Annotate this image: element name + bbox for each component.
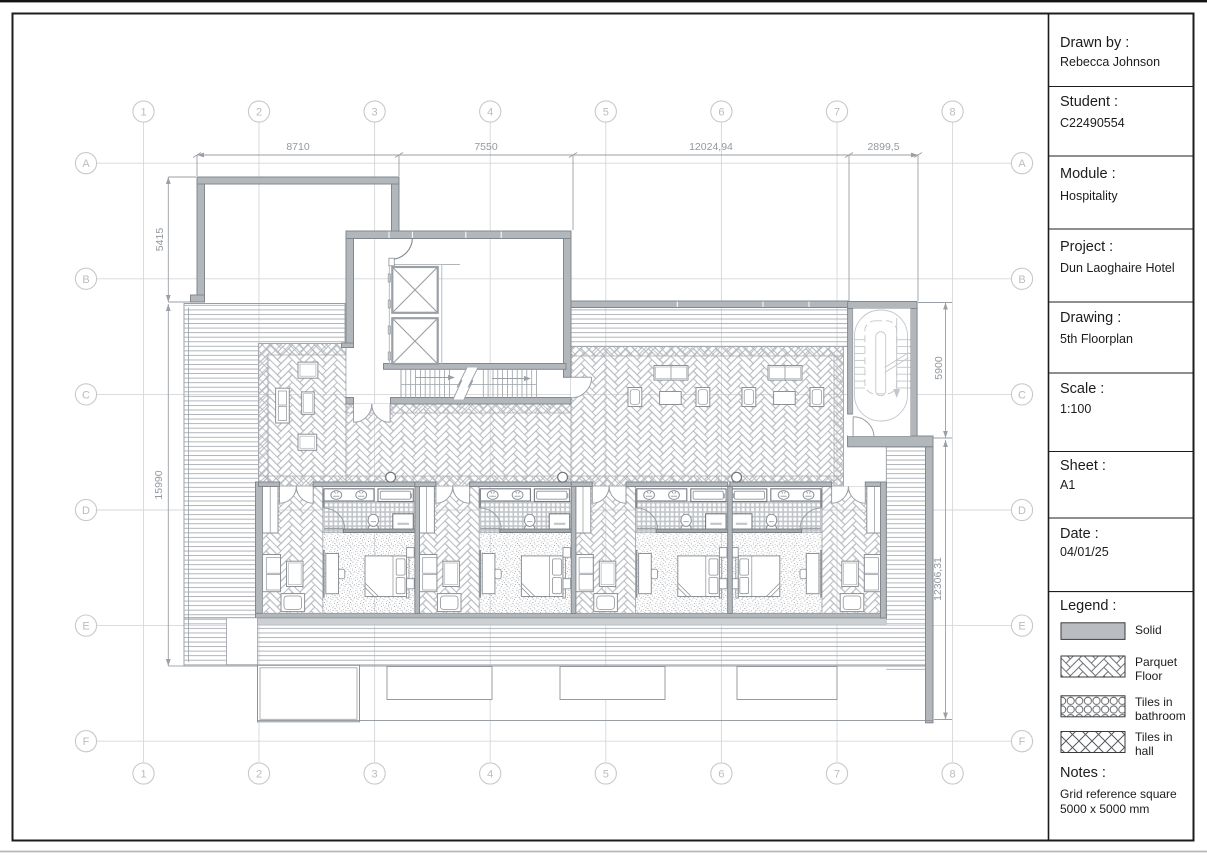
svg-text:3: 3: [372, 107, 378, 119]
svg-text:B: B: [1018, 274, 1025, 286]
svg-text:A1: A1: [1060, 478, 1075, 492]
svg-text:2899,5: 2899,5: [867, 141, 899, 153]
svg-text:3: 3: [372, 769, 378, 781]
svg-text:F: F: [83, 736, 90, 748]
svg-text:1: 1: [140, 769, 146, 781]
svg-text:15990: 15990: [153, 470, 165, 499]
svg-text:5000 x 5000 mm: 5000 x 5000 mm: [1060, 802, 1149, 816]
svg-text:5th Floorplan: 5th Floorplan: [1060, 332, 1133, 346]
svg-text:Project :: Project :: [1060, 239, 1113, 255]
svg-text:Drawing :: Drawing :: [1060, 310, 1121, 326]
svg-text:4: 4: [487, 769, 493, 781]
svg-text:B: B: [82, 274, 89, 286]
svg-text:Hospitality: Hospitality: [1060, 189, 1118, 203]
svg-text:Notes :: Notes :: [1060, 765, 1106, 781]
svg-text:7: 7: [834, 769, 840, 781]
svg-text:F: F: [1019, 736, 1026, 748]
svg-text:04/01/25: 04/01/25: [1060, 545, 1109, 559]
svg-text:Scale :: Scale :: [1060, 381, 1104, 397]
svg-text:Legend :: Legend :: [1060, 598, 1116, 614]
svg-text:12024,94: 12024,94: [689, 141, 733, 153]
svg-text:Rebecca Johnson: Rebecca Johnson: [1060, 55, 1160, 69]
svg-text:Solid: Solid: [1135, 623, 1162, 637]
svg-text:5900: 5900: [933, 356, 945, 380]
svg-text:Dun Laoghaire Hotel: Dun Laoghaire Hotel: [1060, 261, 1175, 275]
svg-text:4: 4: [487, 107, 493, 119]
svg-text:6: 6: [718, 769, 724, 781]
svg-text:D: D: [1018, 505, 1026, 517]
svg-text:2: 2: [256, 107, 262, 119]
svg-text:5: 5: [603, 107, 609, 119]
svg-text:bathroom: bathroom: [1135, 709, 1186, 723]
svg-text:C: C: [82, 389, 90, 401]
svg-text:Module :: Module :: [1060, 166, 1116, 182]
svg-text:8710: 8710: [286, 141, 310, 153]
svg-text:Tiles in: Tiles in: [1135, 695, 1173, 709]
svg-text:7: 7: [834, 107, 840, 119]
svg-text:12306,31: 12306,31: [932, 557, 944, 601]
svg-text:Student :: Student :: [1060, 94, 1118, 110]
svg-text:A: A: [1018, 158, 1026, 170]
svg-text:C: C: [1018, 389, 1026, 401]
svg-text:5: 5: [603, 769, 609, 781]
svg-text:Drawn by :: Drawn by :: [1060, 35, 1129, 51]
svg-text:E: E: [1018, 621, 1025, 633]
svg-text:5415: 5415: [154, 228, 166, 252]
svg-text:E: E: [82, 621, 89, 633]
svg-text:1: 1: [140, 107, 146, 119]
svg-text:Floor: Floor: [1135, 669, 1162, 683]
svg-text:Grid reference square: Grid reference square: [1060, 787, 1177, 801]
svg-text:7550: 7550: [474, 141, 498, 153]
svg-text:Sheet :: Sheet :: [1060, 458, 1106, 474]
svg-text:hall: hall: [1135, 744, 1154, 758]
svg-text:8: 8: [950, 107, 956, 119]
svg-text:8: 8: [950, 769, 956, 781]
svg-text:6: 6: [718, 107, 724, 119]
svg-text:D: D: [82, 505, 90, 517]
svg-text:1:100: 1:100: [1060, 402, 1091, 416]
svg-text:A: A: [82, 158, 90, 170]
svg-text:C22490554: C22490554: [1060, 116, 1125, 130]
svg-text:Date :: Date :: [1060, 526, 1099, 542]
svg-text:2: 2: [256, 769, 262, 781]
svg-text:Parquet: Parquet: [1135, 655, 1178, 669]
svg-text:Tiles in: Tiles in: [1135, 730, 1173, 744]
